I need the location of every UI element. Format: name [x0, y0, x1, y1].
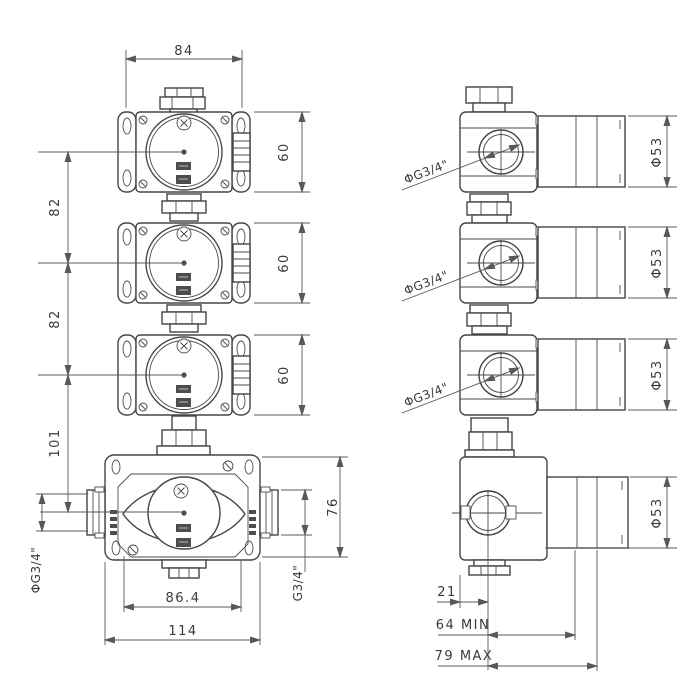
dim-21-label: 21 — [437, 585, 457, 600]
dim-60-label-2: 60 — [277, 253, 292, 273]
dim-101-label: 101 — [48, 428, 63, 457]
dim-port-diameter-label: ΦG3/4" — [29, 547, 43, 594]
side-top-fitting — [466, 87, 512, 112]
side-valve-unit-3 — [460, 335, 625, 415]
side-connector-1 — [467, 194, 511, 223]
dim-76-label: 76 — [326, 497, 341, 517]
side-valve-unit-2 — [460, 223, 625, 303]
dim-64min-label: 64 MIN — [436, 618, 490, 633]
dim-82-label-1: 82 — [48, 197, 63, 217]
front-base-box — [87, 455, 278, 578]
port-thread-label-3: ΦG3/4" — [402, 380, 451, 410]
drawing-page: 84 60 60 60 82 82 101 ΦG3/4" 76 G3/4" 86… — [0, 0, 700, 700]
dim-86-label: 86.4 — [166, 591, 201, 606]
dim-79max-label: 79 MAX — [435, 649, 494, 664]
side-connector-2 — [467, 305, 511, 334]
dim-84-label: 84 — [174, 44, 194, 59]
dim-82-label-2: 82 — [48, 309, 63, 329]
side-base-unit — [452, 457, 628, 575]
coil-diameter-label-2: Φ53 — [650, 247, 665, 278]
coil-diameter-label-4: Φ53 — [650, 497, 665, 528]
dim-60-label-1: 60 — [277, 142, 292, 162]
port-thread-label-1: ΦG3/4" — [402, 157, 451, 187]
dim-114-label: 114 — [168, 624, 197, 639]
dim-60-label-3: 60 — [277, 365, 292, 385]
dim-g34-lines — [281, 490, 312, 572]
front-base-connector — [157, 416, 210, 455]
dim-port-diameter-lines — [36, 494, 88, 531]
coil-diameter-label-1: Φ53 — [650, 136, 665, 167]
front-connector-1 — [162, 194, 206, 221]
dim-outlet-thread-label: G3/4" — [291, 565, 305, 602]
front-view — [87, 88, 278, 578]
front-connector-2 — [162, 305, 206, 332]
technical-drawing: 84 60 60 60 82 82 101 ΦG3/4" 76 G3/4" 86… — [0, 0, 700, 700]
side-base-connector — [465, 418, 514, 457]
side-valve-unit-1 — [460, 112, 625, 192]
front-top-fitting — [160, 88, 205, 113]
coil-diameter-label-3: Φ53 — [650, 359, 665, 390]
port-thread-label-2: ΦG3/4" — [402, 268, 451, 298]
